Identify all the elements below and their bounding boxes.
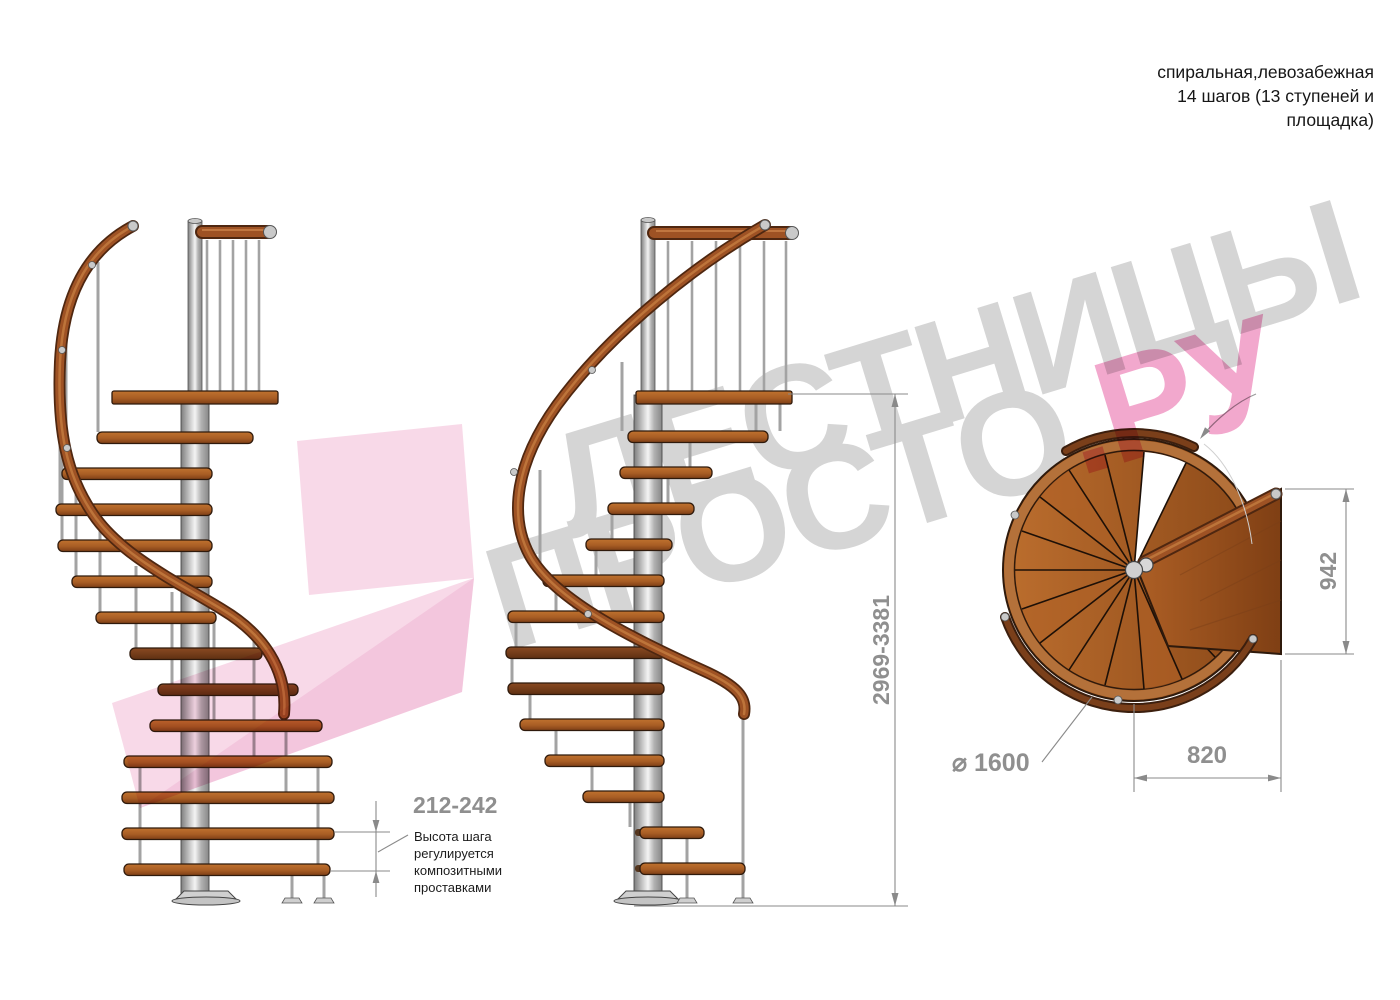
dim-label-total-height: 2969-3381 <box>868 540 894 760</box>
drawing-title: спиральная,левозабежная 14 шагов (13 сту… <box>954 60 1374 132</box>
dim-label-diameter: ⌀ 1600 <box>952 748 1030 778</box>
step-height-note: Высота шага регулируется композитными пр… <box>414 829 502 897</box>
dim-label-step-height: 212-242 <box>413 792 497 819</box>
dim-label-platform-length: 820 <box>1147 742 1267 770</box>
watermark-arrow <box>0 0 1400 1000</box>
drawing-page: ЛЕСТНИЦЫ ПРОСТО.РУ <box>0 0 1400 1000</box>
dim-label-platform-depth: 942 <box>1315 471 1341 671</box>
watermark-arrow-square <box>297 424 474 595</box>
